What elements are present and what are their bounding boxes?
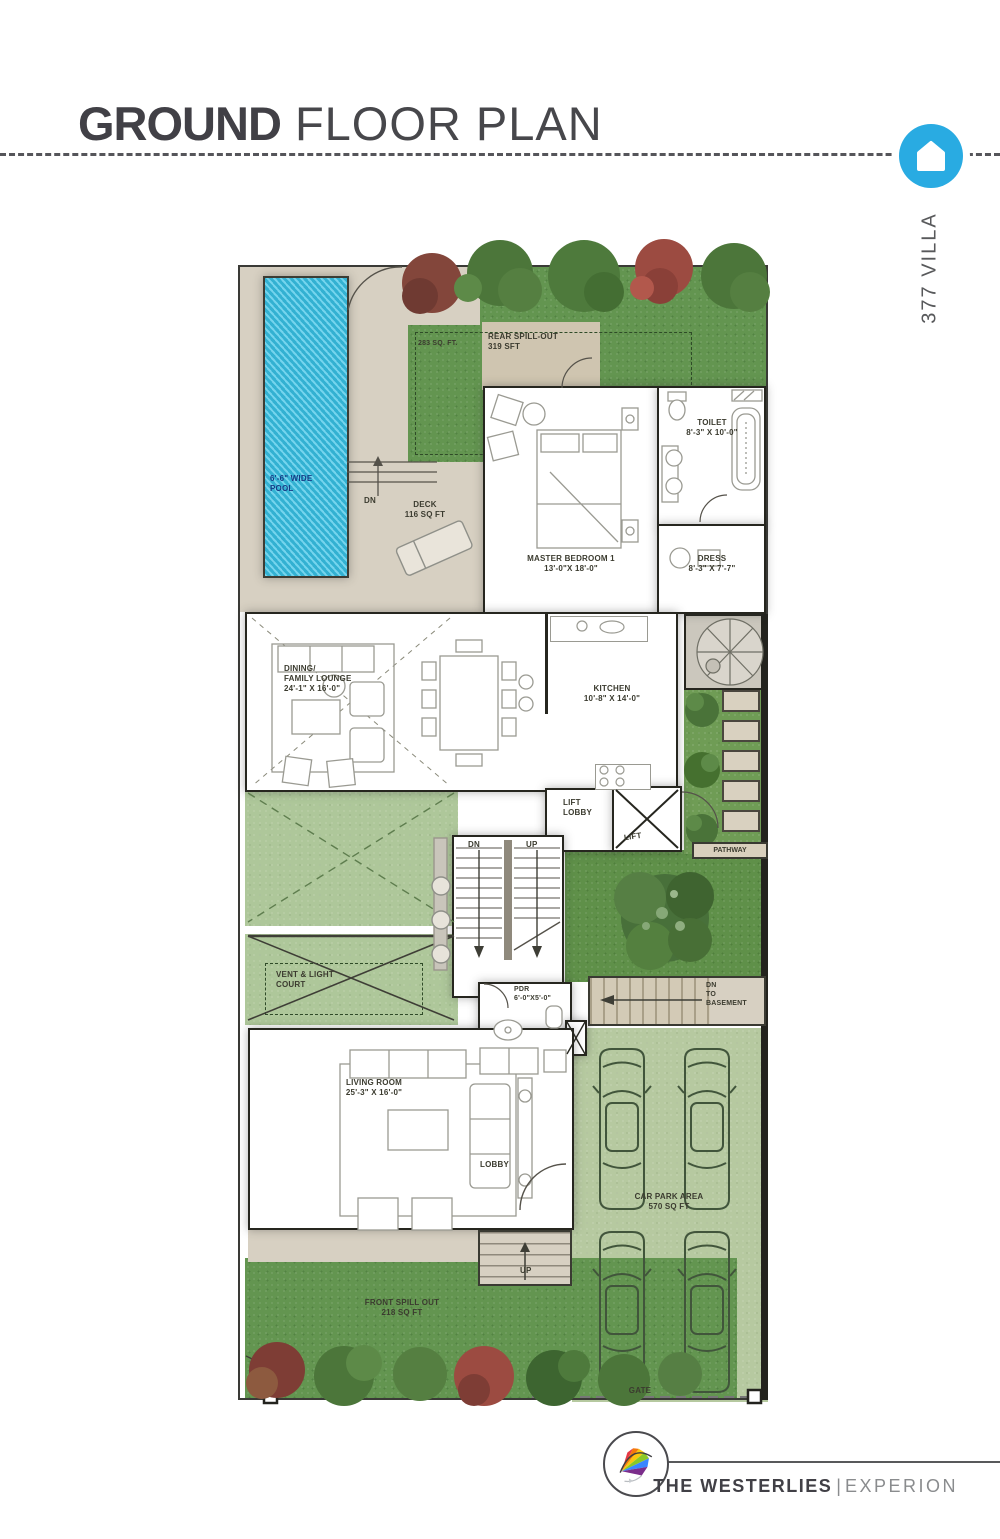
pool-label: 6'-6" WIDE POOL	[270, 474, 312, 494]
brand-developer: EXPERION	[845, 1476, 958, 1496]
pool-dn-label: DN	[364, 496, 376, 506]
master-bedroom-label: MASTER BEDROOM 1 13'-0"X 18'-0"	[487, 554, 655, 574]
dashed-divider	[0, 153, 1000, 156]
title-light: FLOOR PLAN	[281, 97, 603, 150]
dress-label: DRESS 8'-3" X 7'-7"	[660, 554, 764, 574]
dining-label: DINING/ FAMILY LOUNGE 24'-1" X 16'-0"	[284, 664, 352, 694]
pool	[263, 276, 349, 578]
deck-label: DECK 116 SQ FT	[380, 500, 470, 520]
stairs-up-label: UP	[526, 840, 538, 850]
kitchen-label: KITCHEN 10'-8" X 14'-0"	[554, 684, 670, 704]
pdr-label: PDR 6'-0"X5'-0"	[514, 986, 551, 1004]
villa-label: 377 VILLA	[919, 212, 942, 323]
title-bold: GROUND	[78, 97, 281, 150]
footer-rule	[667, 1461, 1000, 1463]
rear-spill-label: REAR SPILL-OUT 319 SFT	[488, 332, 558, 352]
entrance-up-label: UP	[520, 1266, 532, 1276]
kitchen-stove	[595, 764, 651, 790]
lift-shaft	[612, 786, 682, 852]
stairwell	[452, 835, 564, 998]
master-bedroom-room	[483, 386, 659, 614]
kitchen-counter	[550, 616, 648, 642]
villa-badge	[899, 124, 963, 188]
gate-label: GATE	[618, 1386, 662, 1396]
page-title: GROUND FLOOR PLAN	[78, 96, 603, 151]
toilet-label: TOILET 8'-3" X 10'-0"	[662, 418, 762, 438]
front-spill-label: FRONT SPILL OUT 218 SQ FT	[292, 1298, 512, 1318]
stairs-dn-label: DN	[468, 840, 480, 850]
living-lobby-room	[248, 1028, 574, 1230]
living-room-label: LIVING ROOM 25'-3" X 16'-0"	[294, 1078, 454, 1098]
toilet-room	[657, 386, 766, 526]
brand-name: THE WESTERLIES	[653, 1476, 832, 1496]
ramp-stripes	[590, 978, 710, 1024]
kitchen-wall	[545, 614, 548, 714]
rear-lawn-area-label: 283 SQ. FT.	[418, 340, 458, 349]
entrance-steps	[478, 1230, 572, 1286]
house-icon	[916, 140, 946, 172]
pathway-label: PATHWAY	[692, 842, 768, 859]
lift-lobby-label: LIFT LOBBY	[563, 798, 592, 818]
car-park-label: CAR PARK AREA 570 SQ FT	[614, 1192, 724, 1212]
page: GROUND FLOOR PLAN 377 VILLA	[0, 0, 1000, 1539]
brand-text: THE WESTERLIES|EXPERION	[640, 1476, 958, 1497]
floor-plan: 6'-6" WIDE POOL DN DECK 116 SQ FT 283 SQ…	[232, 258, 772, 1408]
lobby-label: LOBBY	[480, 1160, 509, 1170]
ramp-label: DN TO BASEMENT	[706, 982, 747, 1008]
vent-court-label: VENT & LIGHT COURT	[276, 970, 334, 990]
brand-separator: |	[832, 1476, 845, 1496]
